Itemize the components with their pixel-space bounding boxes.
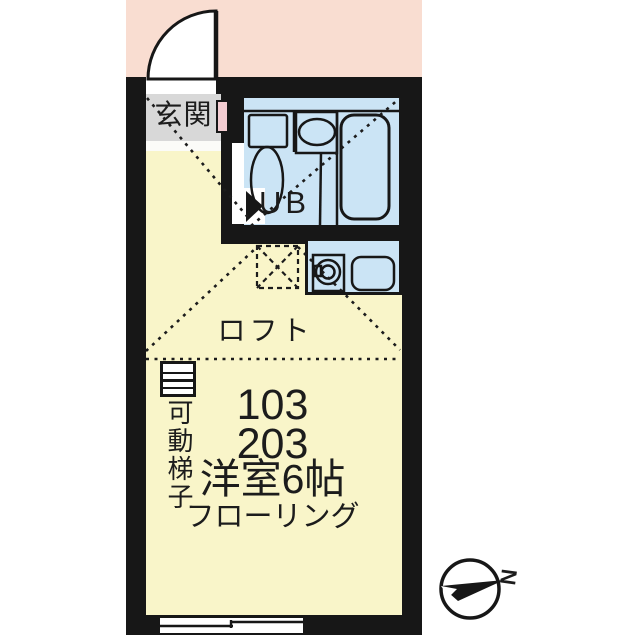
header-band — [126, 0, 422, 78]
compass-icon — [441, 560, 504, 618]
kitchen-counter-block — [305, 238, 402, 295]
unit-bath-label: UB — [259, 187, 310, 218]
entrance-label: 玄関 — [147, 101, 220, 129]
floor-plan: 玄関 UB ロフト 103 203 洋室6帖 フローリング 可動梯子 N — [0, 0, 640, 640]
ladder-rung — [163, 372, 193, 375]
loft-label: ロフト — [203, 317, 328, 345]
ladder-label: 可動梯子 — [162, 399, 192, 514]
compass-north-label: N — [496, 568, 520, 587]
ladder-rung — [163, 379, 193, 382]
bath-door-opening — [232, 143, 244, 224]
entrance-door-opening — [146, 77, 216, 94]
entrance-step — [146, 141, 221, 151]
window-icon — [160, 618, 303, 633]
